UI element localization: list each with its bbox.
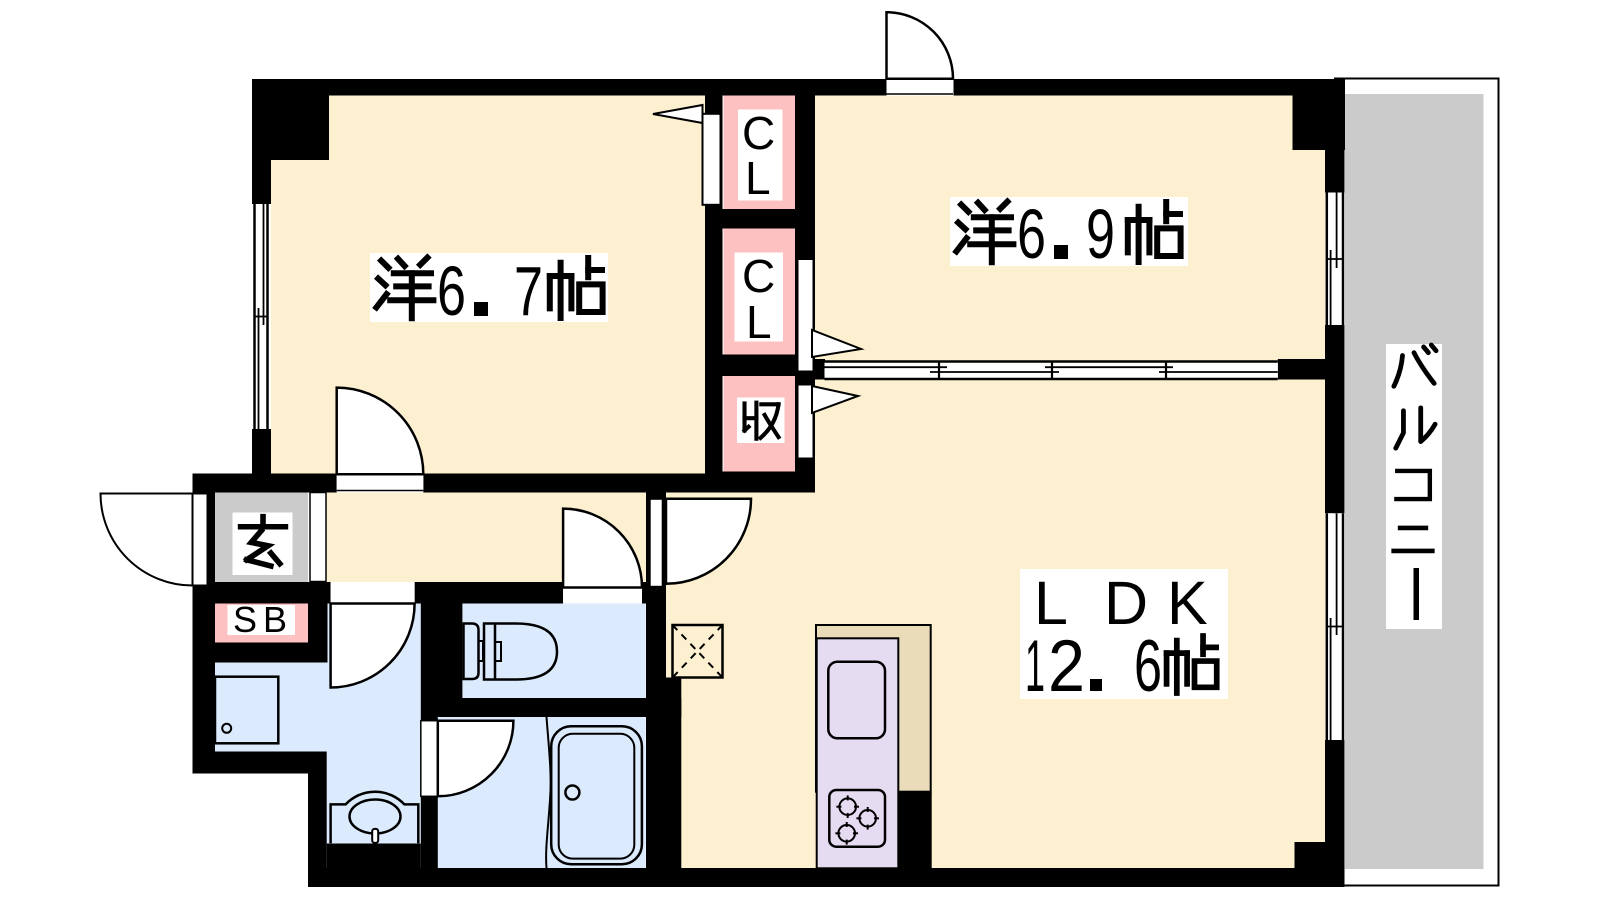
svg-text:6: 6: [1134, 626, 1162, 707]
svg-text:C: C: [742, 250, 775, 302]
svg-text:L: L: [745, 152, 771, 204]
svg-text:B: B: [263, 599, 287, 640]
svg-text:7: 7: [514, 252, 543, 330]
svg-text:6: 6: [1017, 195, 1046, 273]
svg-text:S: S: [233, 599, 257, 640]
svg-text:6: 6: [437, 252, 466, 330]
svg-text:9: 9: [1086, 195, 1115, 273]
svg-text:2: 2: [1048, 626, 1085, 707]
svg-text:1: 1: [1025, 626, 1045, 707]
svg-text:K: K: [1167, 569, 1208, 637]
svg-text:L: L: [746, 296, 772, 348]
